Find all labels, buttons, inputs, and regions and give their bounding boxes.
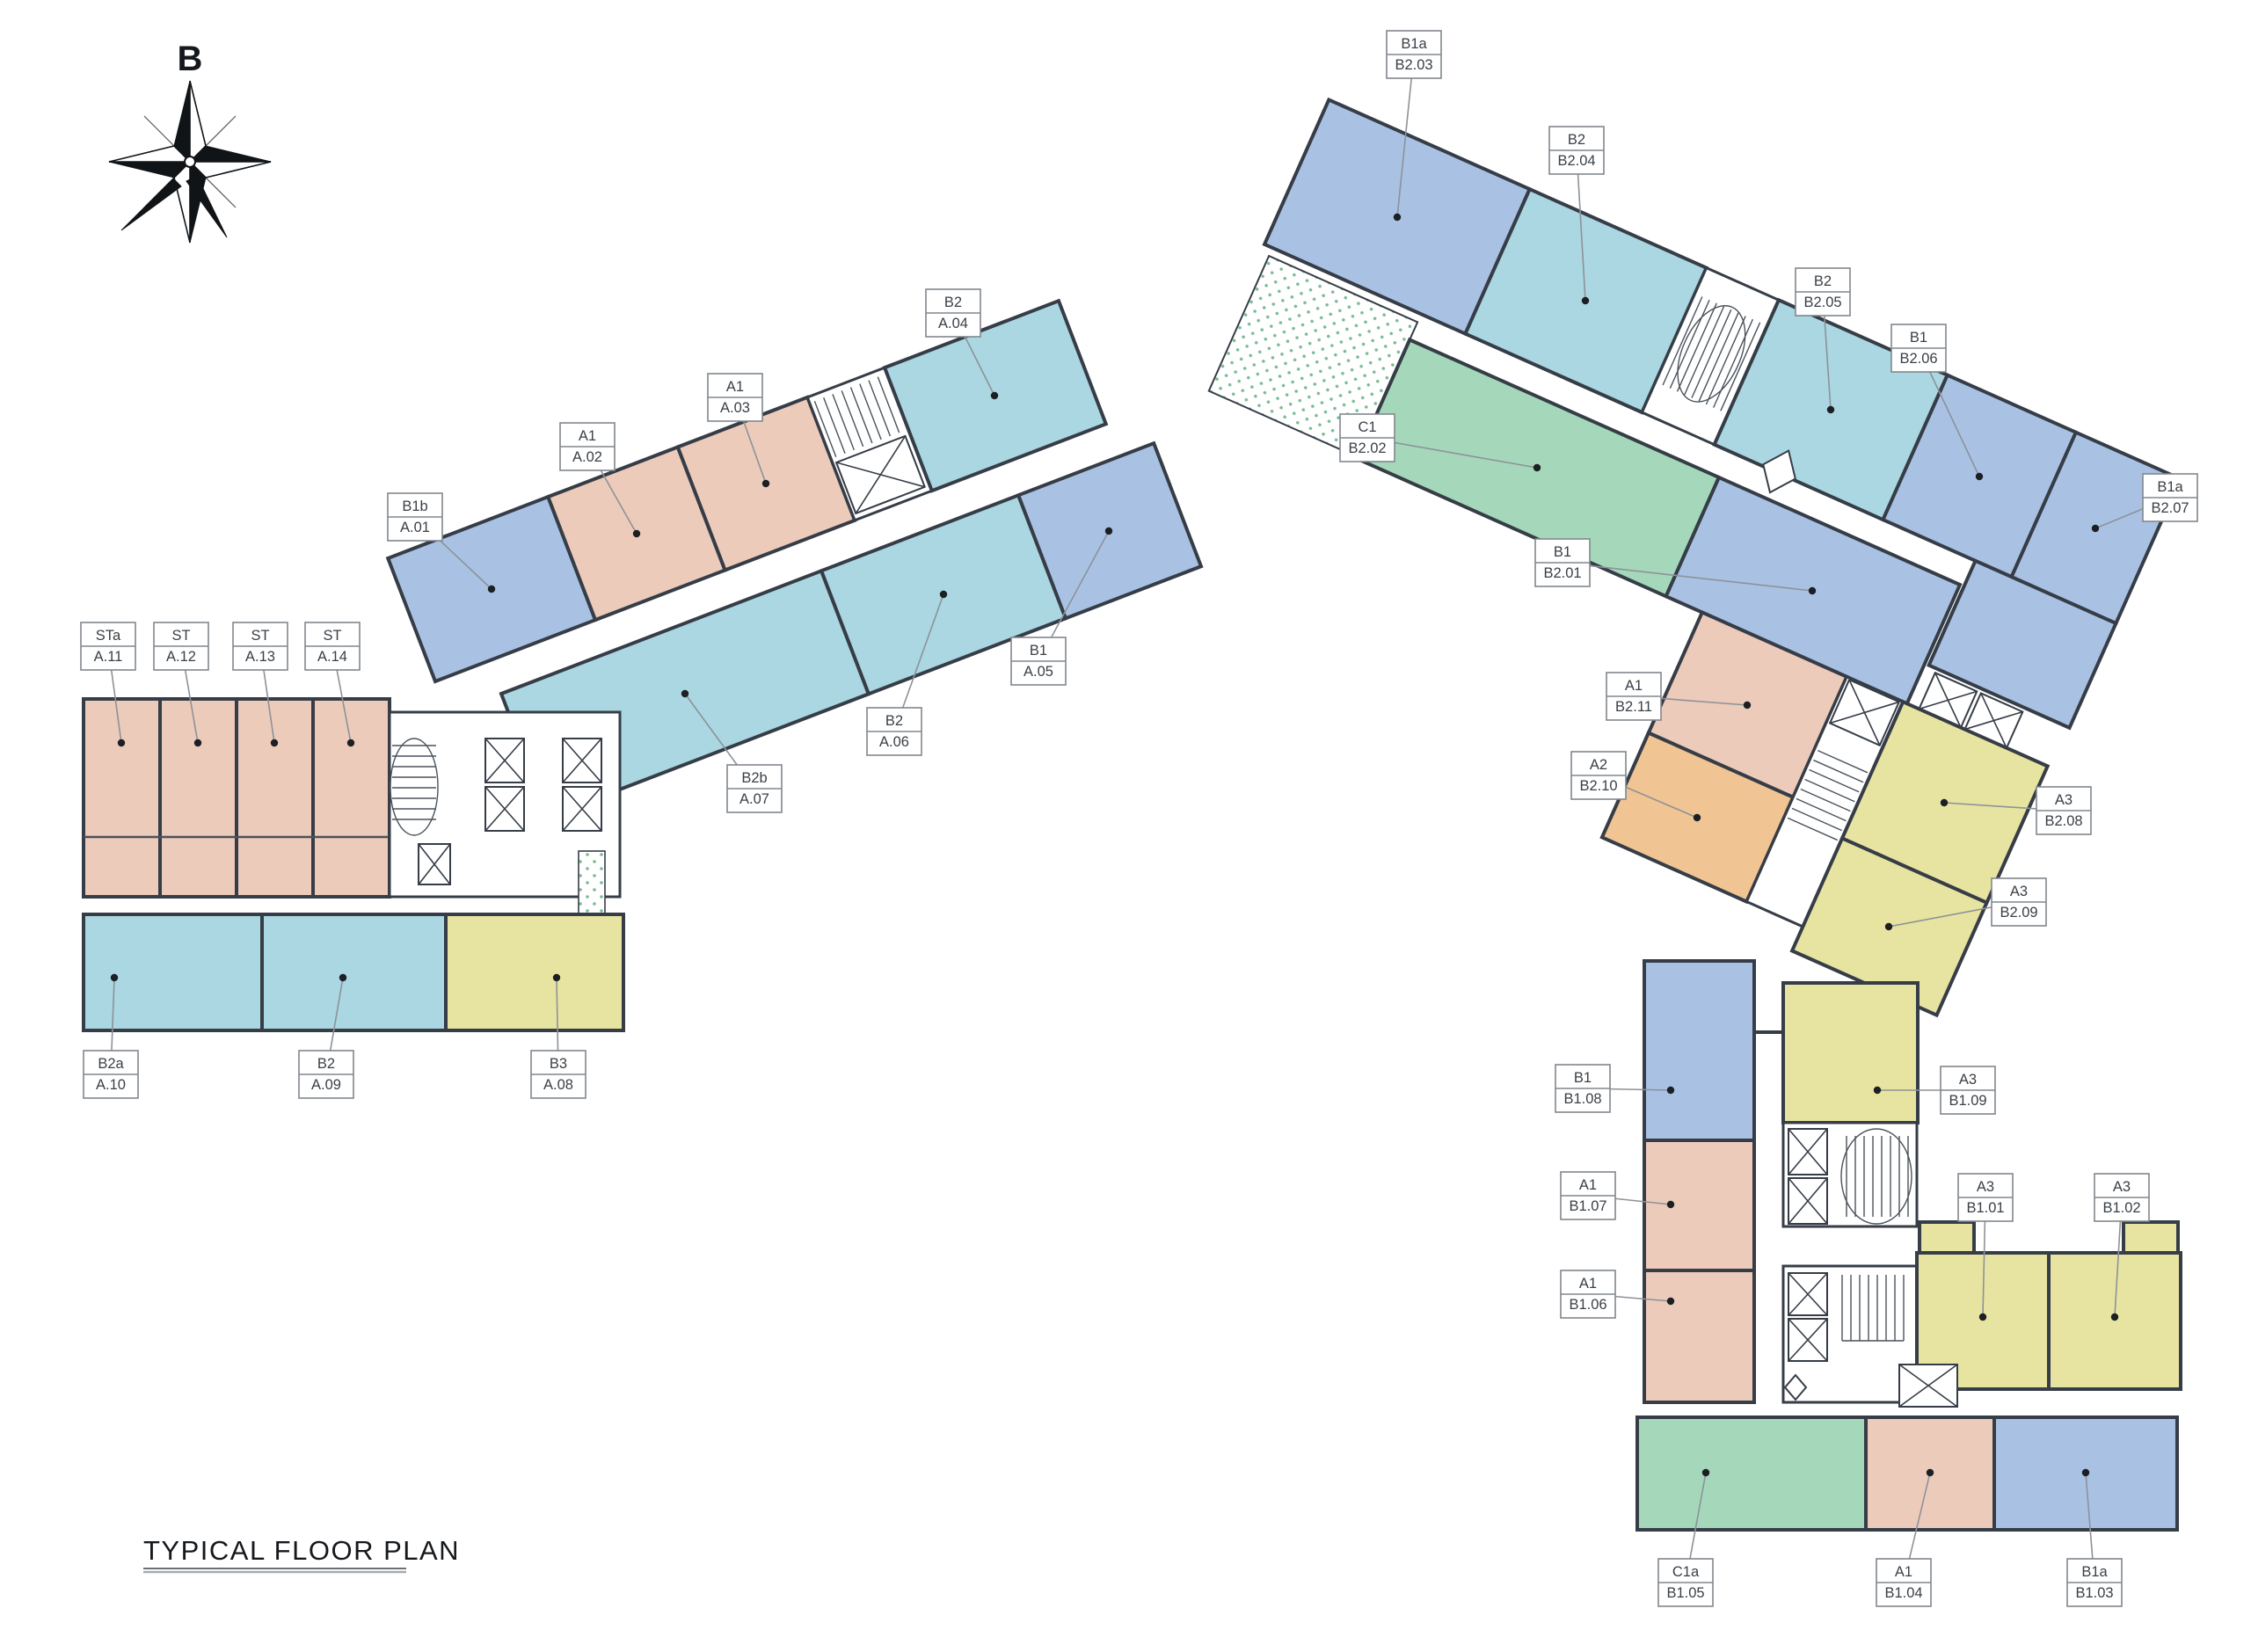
- svg-text:B2.06: B2.06: [1899, 351, 1937, 367]
- leader-dot: [347, 739, 354, 746]
- leader-dot: [1667, 1298, 1674, 1305]
- leader-dot: [2111, 1314, 2118, 1321]
- svg-text:A3: A3: [1977, 1179, 1994, 1195]
- page-title: TYPICAL FLOOR PLAN: [143, 1535, 460, 1566]
- svg-text:STa: STa: [96, 628, 121, 644]
- svg-text:B2.07: B2.07: [2151, 500, 2189, 516]
- svg-text:ST: ST: [323, 628, 341, 644]
- svg-text:A.06: A.06: [879, 734, 909, 750]
- leader-dot: [1582, 297, 1589, 304]
- leader-dot: [1744, 702, 1751, 709]
- callout-a02: A1A.02: [560, 423, 615, 470]
- compass-rose: B: [109, 40, 271, 243]
- callout-b1-05: C1aB1.05: [1658, 1559, 1713, 1606]
- svg-text:A.07: A.07: [739, 791, 769, 807]
- svg-text:B2.11: B2.11: [1615, 699, 1652, 715]
- svg-text:B2.04: B2.04: [1557, 153, 1595, 169]
- leader-dot: [1927, 1469, 1934, 1476]
- leader-dot: [2092, 525, 2099, 532]
- svg-text:C1a: C1a: [1672, 1564, 1700, 1580]
- svg-text:A1: A1: [1895, 1564, 1912, 1580]
- unit-b1-08: [1644, 961, 1754, 1140]
- leader-dot: [2082, 1469, 2089, 1476]
- callout-b1-03: B1aB1.03: [2067, 1559, 2122, 1606]
- svg-text:B2: B2: [885, 713, 903, 729]
- leader-dot: [1702, 1469, 1709, 1476]
- terrace-dotted: [579, 851, 605, 921]
- svg-text:A.05: A.05: [1024, 664, 1053, 680]
- svg-text:B2.01: B2.01: [1543, 565, 1581, 581]
- leader-dot: [940, 591, 947, 598]
- callout-a01: B1bA.01: [388, 493, 442, 541]
- leader-dot: [1667, 1087, 1674, 1094]
- leader-dot: [488, 586, 495, 593]
- callout-b1-04: A1B1.04: [1876, 1559, 1931, 1606]
- callout-b1-06: A1B1.06: [1561, 1270, 1615, 1318]
- unit-a14: [313, 699, 390, 897]
- unit-a12: [160, 699, 237, 897]
- drawing-title: TYPICAL FLOOR PLAN: [143, 1535, 460, 1572]
- callout-b2-08: A3B2.08: [2036, 787, 2091, 834]
- unit-b1-01-tab: [1920, 1222, 1974, 1253]
- callout-b2-05: B2B2.05: [1796, 268, 1850, 316]
- svg-text:A3: A3: [2010, 884, 2028, 899]
- svg-text:B2.05: B2.05: [1803, 295, 1841, 310]
- leader-dot: [194, 739, 201, 746]
- leader-dot: [1941, 799, 1948, 806]
- callout-a05: B1A.05: [1011, 637, 1066, 685]
- svg-text:B1.02: B1.02: [2102, 1200, 2140, 1216]
- leader-dot: [991, 392, 998, 399]
- svg-text:A.14: A.14: [317, 649, 347, 665]
- leader-dot: [1809, 587, 1816, 594]
- block-b1-building: [1637, 961, 2181, 1530]
- callout-a03: A1A.03: [708, 374, 762, 421]
- svg-text:A.10: A.10: [96, 1077, 126, 1093]
- svg-text:B2a: B2a: [98, 1056, 124, 1072]
- svg-text:A2: A2: [1590, 757, 1607, 773]
- callout-a04: B2A.04: [926, 289, 980, 337]
- block-a-horizontal-wing: [84, 699, 623, 1030]
- svg-text:B2.03: B2.03: [1395, 57, 1432, 73]
- svg-text:A.08: A.08: [543, 1077, 573, 1093]
- leader-dot: [1885, 923, 1892, 930]
- svg-text:A.09: A.09: [311, 1077, 341, 1093]
- callout-a11: STaA.11: [81, 622, 135, 670]
- unit-b1-02: [2049, 1253, 2181, 1389]
- leader-dot: [1979, 1314, 1986, 1321]
- svg-text:C1: C1: [1358, 419, 1376, 435]
- unit-a08: [446, 914, 623, 1030]
- svg-text:B2.09: B2.09: [2000, 905, 2037, 921]
- unit-b1-06: [1644, 1270, 1754, 1402]
- svg-text:ST: ST: [251, 628, 269, 644]
- svg-text:B2.08: B2.08: [2044, 813, 2082, 829]
- leader-dot: [762, 480, 769, 487]
- callout-b2-10: A2B2.10: [1571, 752, 1626, 799]
- svg-text:A.12: A.12: [166, 649, 196, 665]
- svg-text:B1: B1: [1554, 544, 1571, 560]
- svg-text:A3: A3: [1959, 1072, 1977, 1088]
- leader-dot: [1976, 473, 1983, 480]
- svg-text:B1.08: B1.08: [1563, 1091, 1601, 1107]
- svg-text:A.03: A.03: [720, 400, 750, 416]
- svg-text:B1.01: B1.01: [1966, 1200, 2004, 1216]
- leader-dot: [339, 974, 346, 981]
- leader-dot: [271, 739, 278, 746]
- callout-b1-07: A1B1.07: [1561, 1172, 1615, 1219]
- callout-b2-07: B1aB2.07: [2143, 474, 2197, 521]
- svg-text:B2: B2: [944, 295, 962, 310]
- leader-dot: [633, 530, 640, 537]
- callout-a13: STA.13: [233, 622, 288, 670]
- callout-a09: B2A.09: [299, 1051, 353, 1098]
- callout-a06: B2A.06: [867, 708, 922, 755]
- floor-plan-page: B1bA.01 A1A.02 A1A.03 B2A.04 B1A.05 B2A.…: [0, 0, 2251, 1652]
- svg-text:B1.05: B1.05: [1666, 1585, 1704, 1601]
- callout-b1-09: A3B1.09: [1941, 1066, 1995, 1114]
- callout-b2-09: A3B2.09: [1992, 878, 2046, 926]
- callout-a12: STA.12: [154, 622, 208, 670]
- svg-text:B1: B1: [1030, 643, 1047, 659]
- svg-text:A3: A3: [2113, 1179, 2131, 1195]
- svg-text:A1: A1: [1579, 1177, 1597, 1193]
- svg-text:B1a: B1a: [1401, 36, 1427, 52]
- callout-b1-02: A3B1.02: [2094, 1174, 2149, 1221]
- callout-b2-02: C1B2.02: [1340, 414, 1395, 462]
- callout-b2-06: B1B2.06: [1891, 324, 1946, 372]
- callout-a14: STA.14: [305, 622, 360, 670]
- callout-a07: B2bA.07: [727, 765, 782, 812]
- svg-text:B1.09: B1.09: [1949, 1093, 1986, 1109]
- svg-text:B1.03: B1.03: [2075, 1585, 2113, 1601]
- leader-dot: [1533, 464, 1541, 471]
- leader-dot: [1874, 1087, 1881, 1094]
- svg-text:B2.02: B2.02: [1348, 440, 1386, 456]
- svg-text:A1: A1: [1625, 678, 1643, 694]
- unit-a10: [84, 914, 262, 1030]
- unit-a13: [237, 699, 313, 897]
- svg-text:B1a: B1a: [2081, 1564, 2108, 1580]
- leader-dot: [1694, 814, 1701, 821]
- leader-dot: [1667, 1201, 1674, 1208]
- svg-text:A1: A1: [579, 428, 596, 444]
- svg-text:B1.07: B1.07: [1569, 1198, 1606, 1214]
- leader-dot: [681, 690, 688, 697]
- svg-text:B1b: B1b: [402, 499, 427, 514]
- unit-b1-05: [1637, 1417, 1866, 1530]
- callout-b2-04: B2B2.04: [1549, 127, 1604, 174]
- unit-a09: [262, 914, 446, 1030]
- svg-text:B3: B3: [550, 1056, 567, 1072]
- compass-north-label: B: [178, 40, 203, 78]
- unit-b1-02-tab: [2124, 1222, 2178, 1253]
- svg-text:B1.04: B1.04: [1884, 1585, 1922, 1601]
- callout-b1-08: B1B1.08: [1555, 1065, 1610, 1112]
- leader-dot: [1394, 214, 1401, 221]
- svg-text:B2: B2: [1568, 132, 1585, 148]
- svg-text:A3: A3: [2055, 792, 2073, 808]
- svg-text:A.11: A.11: [94, 649, 123, 665]
- unit-b1-07: [1644, 1140, 1754, 1270]
- leader-dot: [1827, 406, 1834, 413]
- svg-text:B2.10: B2.10: [1579, 778, 1617, 794]
- svg-text:A1: A1: [1579, 1276, 1597, 1292]
- svg-text:ST: ST: [171, 628, 190, 644]
- callout-a08: B3A.08: [531, 1051, 586, 1098]
- callout-b2-01: B1B2.01: [1535, 539, 1590, 586]
- callout-b1-01: A3B1.01: [1958, 1174, 2013, 1221]
- svg-text:A.02: A.02: [572, 449, 602, 465]
- svg-text:A1: A1: [726, 379, 744, 395]
- svg-text:B2: B2: [317, 1056, 335, 1072]
- leader-dot: [1105, 528, 1112, 535]
- svg-text:A.01: A.01: [400, 520, 430, 535]
- callout-a10: B2aA.10: [84, 1051, 138, 1098]
- svg-text:A.04: A.04: [938, 316, 968, 331]
- leader-dot: [553, 974, 560, 981]
- svg-text:B2b: B2b: [741, 770, 767, 786]
- svg-text:B1.06: B1.06: [1569, 1297, 1606, 1313]
- leader-dot: [111, 974, 118, 981]
- unit-b1-09: [1783, 983, 1918, 1123]
- leader-dot: [118, 739, 125, 746]
- callout-b2-11: A1B2.11: [1606, 673, 1661, 720]
- svg-text:A.13: A.13: [245, 649, 275, 665]
- callout-b2-03: B1aB2.03: [1387, 31, 1441, 78]
- svg-text:B1a: B1a: [2157, 479, 2183, 495]
- svg-text:B2: B2: [1814, 273, 1832, 289]
- svg-text:B1: B1: [1910, 330, 1927, 346]
- svg-text:B1: B1: [1574, 1070, 1592, 1086]
- floor-plan-drawing: B1bA.01 A1A.02 A1A.03 B2A.04 B1A.05 B2A.…: [0, 0, 2251, 1652]
- unit-a11: [84, 699, 160, 897]
